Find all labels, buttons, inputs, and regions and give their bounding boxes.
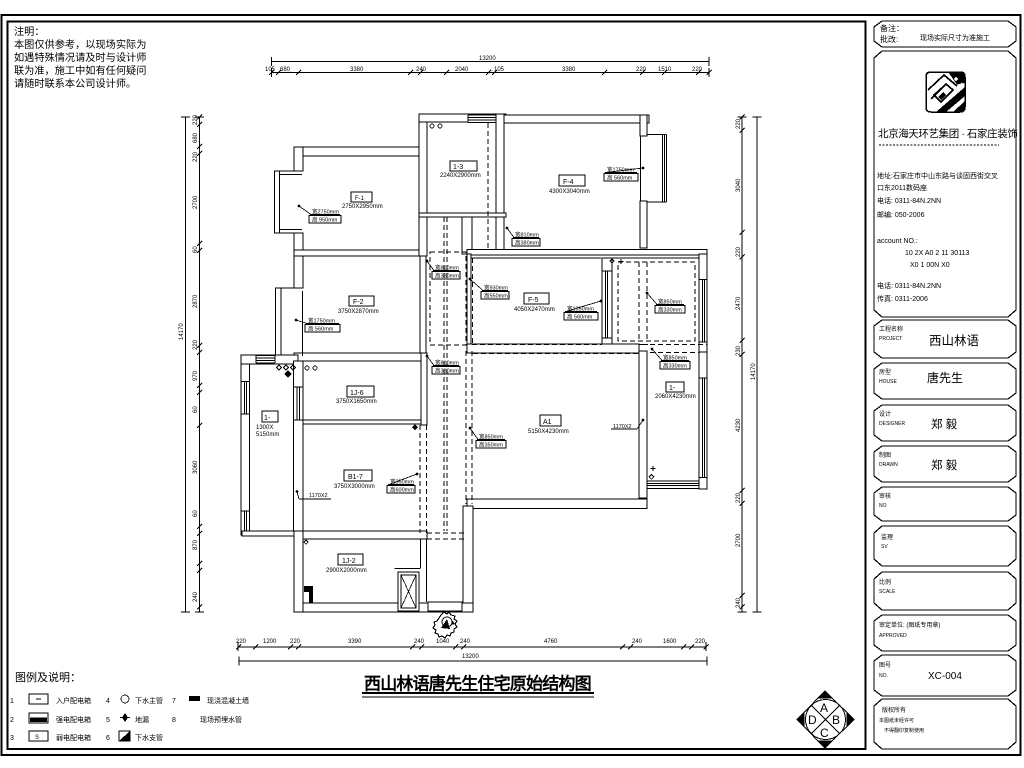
svg-text:14170: 14170	[751, 363, 757, 380]
svg-text:account NO.:: account NO.:	[877, 238, 918, 245]
svg-text:高 560mm: 高 560mm	[567, 313, 593, 321]
svg-text:B1-7: B1-7	[348, 474, 363, 481]
svg-text:220: 220	[193, 339, 199, 350]
svg-text:HOUSE: HOUSE	[879, 379, 897, 385]
svg-text:4: 4	[106, 698, 110, 705]
svg-text:60: 60	[193, 510, 199, 517]
svg-text:240: 240	[193, 591, 199, 602]
svg-text:1J-2: 1J-2	[342, 558, 356, 565]
svg-text:请随时联系本公司设计师。: 请随时联系本公司设计师。	[14, 77, 136, 90]
svg-text:3060: 3060	[193, 460, 199, 474]
svg-text:高 560mm: 高 560mm	[308, 325, 334, 333]
svg-text:不得翻印复制使用: 不得翻印复制使用	[884, 727, 924, 734]
svg-text:郑 毅: 郑 毅	[931, 458, 958, 472]
svg-text:现场预埋水管: 现场预埋水管	[200, 715, 242, 724]
svg-text:240: 240	[414, 639, 425, 645]
svg-text:现场实际尺寸为准施工: 现场实际尺寸为准施工	[920, 33, 990, 42]
svg-text:220: 220	[290, 639, 301, 645]
svg-text:3750X2870mm: 3750X2870mm	[338, 309, 379, 315]
svg-text:本图纸未经许可: 本图纸未经许可	[879, 717, 914, 724]
svg-text:220: 220	[695, 639, 706, 645]
svg-text:XC-004: XC-004	[928, 671, 962, 682]
svg-text:现浇混凝土墙: 现浇混凝土墙	[207, 696, 249, 705]
svg-text:680: 680	[193, 132, 199, 143]
svg-text:电话: 0311-84N.2NN: 电话: 0311-84N.2NN	[877, 196, 941, 205]
svg-text:NO: NO	[879, 503, 887, 509]
svg-text:4300X3040mm: 4300X3040mm	[549, 189, 590, 195]
svg-text:高 950mm: 高 950mm	[312, 216, 338, 224]
svg-text:6: 6	[106, 735, 110, 742]
svg-text:本图仅供参考，以现场实际为: 本图仅供参考，以现场实际为	[14, 38, 146, 51]
svg-text:3040: 3040	[736, 178, 742, 192]
svg-text:F-5: F-5	[528, 297, 539, 304]
svg-text:1510: 1510	[658, 67, 672, 73]
svg-text:2750X2950mm: 2750X2950mm	[342, 204, 383, 210]
svg-text:D: D	[808, 713, 817, 727]
svg-text:SV: SV	[881, 544, 888, 550]
svg-text:地址:石家庄市中山东路与谈固西街交叉: 地址:石家庄市中山东路与谈固西街交叉	[877, 171, 998, 180]
svg-text:F-4: F-4	[563, 179, 574, 186]
svg-text:APPROVED: APPROVED	[879, 633, 907, 639]
svg-text:3: 3	[10, 735, 14, 742]
svg-text:5150X4230mm: 5150X4230mm	[528, 429, 569, 435]
svg-text:60: 60	[193, 406, 199, 413]
svg-text:F-1: F-1	[355, 196, 365, 202]
svg-text:制图: 制图	[879, 451, 891, 459]
svg-text:1600: 1600	[663, 639, 677, 645]
svg-text:下水主管: 下水主管	[135, 696, 163, 705]
svg-text:弱电配电箱: 弱电配电箱	[56, 733, 91, 742]
svg-text:北京海天环艺集团 · 石家庄装饰: 北京海天环艺集团 · 石家庄装饰	[878, 127, 1017, 140]
svg-text:西山林语: 西山林语	[929, 334, 979, 348]
svg-text:1300X: 1300X	[256, 425, 273, 431]
svg-text:1: 1	[10, 698, 14, 705]
svg-text:电话: 0311-84N.2NN: 电话: 0311-84N.2NN	[877, 281, 941, 290]
svg-text:2470: 2470	[736, 296, 742, 310]
svg-text:230: 230	[736, 345, 742, 356]
svg-text:审定单位: (图纸专用章): 审定单位: (图纸专用章)	[879, 621, 940, 629]
svg-text:10 2X A0 2 11 30113: 10 2X A0 2 11 30113	[905, 250, 969, 257]
svg-text:2060X4230mm: 2060X4230mm	[655, 394, 696, 400]
svg-text:1170X2: 1170X2	[309, 493, 328, 499]
svg-text:A: A	[820, 701, 828, 715]
svg-text:批改:: 批改:	[880, 34, 898, 44]
svg-text:X0 1 00N X0: X0 1 00N X0	[910, 262, 950, 269]
svg-text:105: 105	[494, 67, 505, 73]
svg-text:105: 105	[265, 67, 276, 73]
svg-text:高 560mm: 高 560mm	[607, 174, 633, 182]
svg-text:240: 240	[736, 597, 742, 608]
svg-text:口东2011数码座: 口东2011数码座	[877, 183, 927, 192]
svg-text:1-3: 1-3	[453, 164, 463, 171]
svg-text:C: C	[820, 726, 829, 740]
svg-text:4050X2470mm: 4050X2470mm	[514, 307, 555, 313]
svg-text:图号: 图号	[879, 662, 891, 669]
svg-text:3750X1650mm: 3750X1650mm	[336, 399, 377, 405]
svg-text:220: 220	[636, 67, 647, 73]
svg-text:下水支管: 下水支管	[135, 733, 163, 742]
svg-text:2: 2	[10, 717, 14, 724]
svg-text:14170: 14170	[179, 323, 185, 340]
svg-text:入户配电箱: 入户配电箱	[56, 696, 91, 705]
svg-text:监理: 监理	[881, 533, 893, 541]
svg-text:A1: A1	[543, 419, 552, 426]
svg-text:传真: 0311-2006: 传真: 0311-2006	[877, 294, 928, 303]
svg-text:240: 240	[416, 67, 427, 73]
svg-text:房型: 房型	[879, 368, 891, 376]
svg-text:SCALE: SCALE	[879, 589, 896, 595]
svg-text:2700: 2700	[193, 195, 199, 209]
svg-text:邮编: 050-2006: 邮编: 050-2006	[877, 210, 925, 219]
svg-text:4760: 4760	[544, 639, 558, 645]
svg-text:地漏: 地漏	[135, 715, 149, 724]
svg-text:680: 680	[280, 67, 291, 73]
svg-text:220: 220	[236, 639, 247, 645]
svg-text:强电配电箱: 强电配电箱	[56, 715, 91, 724]
svg-text:高330mm: 高330mm	[663, 362, 687, 370]
svg-text:1040: 1040	[436, 639, 450, 645]
svg-text:3380: 3380	[562, 67, 576, 73]
svg-text:4230: 4230	[736, 418, 742, 432]
svg-text:高330mm: 高330mm	[658, 306, 682, 314]
svg-text:1J-6: 1J-6	[350, 390, 364, 397]
svg-text:2870: 2870	[193, 294, 199, 308]
svg-text:220: 220	[736, 492, 742, 503]
svg-text:220: 220	[692, 67, 703, 73]
svg-text:S: S	[35, 735, 39, 741]
svg-text:5150mm: 5150mm	[256, 432, 279, 438]
svg-text:设计: 设计	[879, 410, 891, 418]
svg-text:PROJECT: PROJECT	[879, 336, 902, 342]
svg-text:220: 220	[736, 118, 742, 129]
svg-text:240: 240	[632, 639, 643, 645]
svg-text:240: 240	[460, 639, 471, 645]
svg-text:F-2: F-2	[353, 299, 364, 306]
svg-text:备注：: 备注：	[880, 23, 904, 33]
svg-text:唐先生: 唐先生	[927, 370, 963, 385]
svg-text:比例: 比例	[879, 578, 891, 586]
svg-text:高350mm: 高350mm	[479, 441, 503, 449]
svg-text:B: B	[832, 713, 840, 727]
svg-text:3750X3000mm: 3750X3000mm	[334, 484, 375, 490]
svg-text:NO.: NO.	[879, 673, 888, 679]
svg-text:西山林语唐先生住宅原始结构图: 西山林语唐先生住宅原始结构图	[364, 674, 591, 694]
svg-text:注明：: 注明：	[14, 25, 45, 38]
svg-text:13200: 13200	[479, 56, 496, 62]
svg-text:970: 970	[193, 370, 199, 381]
svg-text:高600mm: 高600mm	[390, 486, 414, 494]
svg-text:高380mm: 高380mm	[515, 239, 539, 247]
svg-text:5: 5	[106, 717, 110, 724]
svg-text:高380mm: 高380mm	[435, 272, 459, 280]
svg-text:DESIGNER: DESIGNER	[879, 421, 906, 427]
svg-text:870: 870	[193, 539, 199, 550]
svg-text:220: 220	[193, 151, 199, 162]
svg-text:如遇特殊情况请及时与设计师: 如遇特殊情况请及时与设计师	[14, 51, 146, 64]
svg-text:DRAWN: DRAWN	[879, 462, 898, 468]
svg-text:3390: 3390	[348, 639, 362, 645]
svg-text:13200: 13200	[462, 654, 479, 660]
svg-text:2240X2900mm: 2240X2900mm	[440, 173, 481, 179]
svg-text:高380mm: 高380mm	[435, 367, 459, 375]
svg-text:郑 毅: 郑 毅	[931, 417, 958, 431]
svg-text:60: 60	[193, 246, 199, 253]
svg-text:图例及说明：: 图例及说明：	[15, 670, 81, 684]
svg-text:2700: 2700	[736, 533, 742, 547]
svg-text:联为准，施工中如有任何疑问: 联为准，施工中如有任何疑问	[14, 64, 146, 77]
svg-text:1-: 1-	[264, 415, 271, 422]
svg-text:高550mm: 高550mm	[484, 292, 508, 300]
svg-text:版权所有: 版权所有	[882, 706, 906, 714]
svg-text:1200: 1200	[263, 639, 277, 645]
svg-text:工程名称: 工程名称	[879, 325, 903, 333]
svg-text:2900X2000mm: 2900X2000mm	[326, 568, 367, 574]
svg-text:220: 220	[193, 114, 199, 125]
svg-text:3380: 3380	[350, 67, 364, 73]
svg-text:审核: 审核	[879, 492, 891, 500]
svg-text:8: 8	[172, 717, 176, 724]
svg-text:2040: 2040	[455, 67, 469, 73]
svg-text:1-: 1-	[669, 385, 676, 392]
svg-text:220: 220	[736, 246, 742, 257]
svg-text:7: 7	[172, 698, 176, 705]
